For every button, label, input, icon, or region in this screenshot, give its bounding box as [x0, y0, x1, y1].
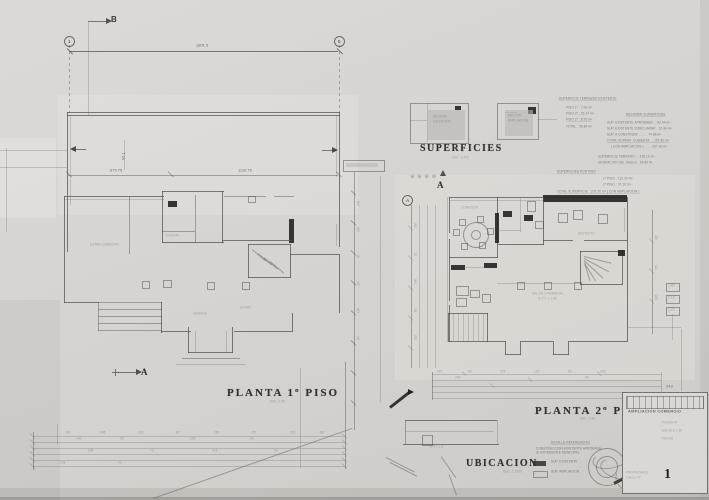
superficies-s1-line: PISO 1º : 7.00 m² — [566, 106, 592, 109]
drawing-line — [98, 309, 162, 310]
arrowhead-icon — [408, 389, 414, 395]
dim-number: 67 — [176, 431, 180, 434]
dim-number: 110 — [290, 431, 295, 434]
drawing-line — [182, 358, 240, 359]
drawing-line — [6, 148, 7, 232]
grid-bubble-5-label: 5 — [338, 39, 341, 45]
drawing-line — [161, 302, 162, 333]
drawing-line — [497, 420, 498, 444]
dim-number: 128 — [60, 461, 66, 464]
drawing-line — [33, 460, 345, 461]
drawing-line — [520, 341, 521, 355]
drawing-line — [67, 115, 340, 116]
drawing-line — [495, 213, 499, 243]
drawing-line — [580, 284, 623, 285]
drawing-line — [390, 462, 417, 477]
plan1-scale: ESC. 1:50 — [270, 400, 285, 403]
plan1-room-label-center: GARAGE — [193, 312, 207, 315]
miniplan1-label-1: SECTOR — [433, 115, 447, 118]
drawing-line — [195, 195, 196, 243]
drawing-line — [580, 251, 623, 252]
plan1-dim-left: 679.75 — [110, 168, 122, 173]
drawing-line — [419, 205, 420, 368]
drawing-line — [624, 208, 625, 232]
titleblock-note: CALLE Nº — [626, 476, 641, 479]
drawing-box — [453, 229, 460, 236]
drawing-line — [57, 424, 58, 444]
drawing-line — [195, 331, 196, 352]
dim-number: 185 — [655, 295, 658, 300]
drawing-line — [449, 257, 498, 258]
drawing-line — [427, 205, 428, 368]
drawing-line — [580, 251, 581, 285]
drawing-line — [290, 254, 340, 255]
plan1-dim-vert: 96.1 — [121, 152, 126, 160]
drawing-line — [115, 369, 116, 376]
titleblock-row: PLANO Nº — [662, 421, 678, 424]
arrowhead-icon — [332, 147, 338, 153]
dim-number: 415 — [655, 235, 658, 240]
drawing-line — [497, 283, 582, 284]
plan2-grid-symbols: ⊕ ⊕ ⊕ ⊗ — [410, 173, 437, 180]
drawing-line — [505, 341, 506, 355]
drawing-line — [618, 250, 625, 256]
dim-number: 120 — [138, 431, 144, 434]
miniplan2-label-1: SECTOR — [508, 114, 522, 117]
plan1-dim-right: 1116.75 — [238, 168, 252, 173]
miniplan1-label-2: EXISTENTE — [433, 120, 451, 123]
drawing-line — [543, 240, 573, 241]
superficies-s1-line: PISO 2º : 15.14 m² — [566, 112, 594, 115]
dim-number: 275 — [500, 370, 506, 373]
drawing-line — [503, 211, 512, 217]
dim-number: 60 — [568, 370, 572, 373]
drawing-line — [70, 51, 338, 52]
superficies-s1-title: SUPERFICIE TERRAZAS EXISTENTE — [559, 97, 617, 101]
dim-number: 140 — [414, 279, 417, 284]
legend-title: DETALLE REFERENCIAS — [551, 441, 590, 445]
ubicacion-scale: ESC. 1:1000 — [503, 470, 522, 473]
drawing-box — [248, 196, 256, 203]
titleblock-sheet-number: 1 — [664, 467, 671, 483]
drawing-line — [98, 316, 162, 317]
dim-number: 245 — [357, 201, 360, 206]
legend-filled-label: SUP. EXISTENTE — [551, 460, 578, 463]
drawing-line — [98, 302, 162, 303]
drawing-box — [574, 282, 582, 290]
plan2-room-label-level: N.P.T. + 2.80 — [538, 297, 557, 300]
scan-dark-left — [0, 300, 60, 500]
drawing-line — [64, 196, 164, 197]
drawing-line — [300, 368, 301, 468]
drawing-line — [68, 175, 338, 176]
drawing-line — [118, 372, 136, 373]
scan-bottom-band — [0, 488, 709, 500]
drawing-line — [478, 313, 479, 342]
dim-number: 55 — [274, 449, 278, 452]
dim-number: 230 — [190, 437, 196, 440]
drawing-line — [162, 231, 195, 232]
superficies-porpiso-line: 2º PISO : 97.10 m² — [603, 183, 631, 186]
drawing-line — [232, 327, 233, 353]
drawing-line — [248, 244, 291, 245]
drawing-line — [162, 242, 224, 243]
plan2-grid-bubble-a-label: A — [406, 198, 409, 204]
drawing-line — [0, 167, 67, 168]
drawing-line — [270, 261, 284, 273]
drawing-box — [544, 282, 552, 290]
dim-number: 345 — [100, 431, 106, 434]
drawing-line — [505, 354, 521, 355]
drawing-line — [483, 313, 484, 342]
drawing-line — [584, 240, 627, 241]
drawing-line — [129, 196, 130, 254]
plan1-room-label-kitchen: COCINA — [166, 234, 179, 237]
drawing-line — [622, 251, 623, 285]
drawing-line — [33, 454, 345, 455]
drawing-line — [176, 364, 246, 365]
drawing-box — [573, 210, 583, 220]
section-b-label: B — [111, 15, 117, 24]
dim-number: 2.80 — [668, 284, 674, 287]
dim-number: 250 — [214, 431, 220, 434]
dim-number: 80 — [468, 370, 472, 373]
drawing-sheet: B 1 5 1801.5 679.75 1116.75 96.1 ESTAR C… — [0, 0, 709, 500]
dim-number: 93 — [118, 461, 122, 464]
drawing-line — [672, 314, 673, 340]
superficies-resumen-title: RESUMEN SUPERFICIES — [626, 113, 665, 117]
legend-open-label: SUP. AMPLIACION — [551, 470, 579, 473]
dim-number: 72 — [150, 449, 154, 452]
drawing-line — [336, 224, 337, 246]
dim-number: 407 — [437, 370, 443, 373]
drawing-line — [64, 196, 65, 303]
drawing-line — [33, 466, 345, 467]
drawing-line — [226, 331, 227, 352]
plan1-room-label-left: ESTAR COMEDOR — [90, 243, 119, 246]
dim-number: 95 — [414, 252, 417, 256]
dim-number: 315 — [212, 449, 218, 452]
miniplan2-label-2: AMPLIACION — [508, 119, 528, 122]
drawing-line — [498, 244, 544, 245]
drawing-line — [487, 313, 488, 342]
drawing-box — [482, 294, 491, 303]
drawing-line — [274, 196, 294, 197]
grid-bubble-5: 5 — [334, 36, 345, 47]
drawing-line — [681, 329, 682, 391]
drawing-line — [64, 302, 99, 303]
drawing-line — [451, 265, 465, 270]
drawing-line — [498, 230, 521, 231]
dim-number: 75 — [252, 431, 256, 434]
drawing-line — [98, 323, 162, 324]
plan1-section-a-label: A — [141, 367, 148, 377]
drawing-line — [449, 239, 450, 301]
drawing-line — [432, 372, 433, 400]
drawing-line — [448, 313, 449, 342]
drawing-line — [524, 215, 533, 221]
drawing-line — [339, 112, 340, 205]
drawing-box — [142, 281, 150, 289]
dim-number: 95 — [357, 336, 360, 340]
drawing-line — [435, 205, 436, 368]
drawing-line — [33, 442, 345, 443]
dim-number: 95 — [585, 376, 589, 379]
drawing-box — [456, 286, 469, 296]
dim-number: 150 — [357, 308, 360, 313]
superficies-resumen-line: SUP. EXISTENTE APROBADA . . 82.44 m² — [607, 121, 670, 124]
drawing-line — [248, 277, 291, 278]
drawing-line — [473, 313, 474, 342]
dim-number: 185 — [88, 449, 94, 452]
titleblock-project: AMPLIACION COMERCIO — [628, 409, 681, 414]
titleblock-letter-cells — [626, 396, 704, 409]
drawing-line — [627, 197, 628, 342]
drawing-line — [463, 313, 464, 342]
plan2-grid-bubble-a: A — [402, 195, 413, 206]
drawing-line — [70, 115, 71, 205]
drawing-line — [88, 21, 106, 22]
drawing-line — [64, 199, 164, 200]
dim-number: 310 — [357, 281, 360, 286]
titleblock-row: FECHA — [662, 437, 673, 440]
dim-number: 1.20 — [668, 308, 674, 311]
titleblock-ref-no: 243 — [666, 384, 673, 389]
drawing-box — [242, 282, 250, 290]
dim-number: 260 — [414, 223, 417, 228]
superficies-resumen-line: ( CON AMPLIACION ) . . . . 207.30 m² — [611, 145, 667, 148]
drawing-line — [162, 191, 224, 192]
drawing-box — [535, 221, 544, 229]
drawing-line — [405, 420, 497, 421]
superficies-resumen-line: TOTAL SUPERF. CUBIERTA . . 157.30 m² — [607, 139, 669, 143]
grid-bubble-1-label: 1 — [68, 39, 71, 45]
plan2-room-label-comedor: COMEDOR — [461, 206, 478, 209]
arrowhead-icon — [70, 146, 76, 152]
drawing-box — [343, 160, 385, 172]
titleblock-row: ESCALA 1:50 — [662, 429, 682, 432]
plan2-room-label-main: SALON COMERCIAL — [532, 292, 564, 295]
drawing-line — [380, 176, 381, 402]
superficies-title: SUPERFICIES — [420, 143, 503, 154]
drawing-circle — [471, 230, 481, 240]
drawing-line — [290, 244, 291, 278]
drawing-line — [168, 201, 177, 207]
superficies-porpiso-title: SUPERFICIES POR PISO — [557, 170, 596, 174]
drawing-line — [67, 112, 68, 252]
drawing-line — [520, 197, 521, 232]
dim-number: 125 — [534, 370, 540, 373]
drawing-box — [410, 103, 469, 144]
superficies-resumen-line: SUP. A CONSTRUIR . . . . . 74.86 m² — [607, 133, 661, 136]
drawing-line — [354, 172, 355, 430]
plan2-room-label-deposito: DEPOSITO — [578, 232, 595, 235]
drawing-line — [336, 115, 337, 177]
drawing-line — [458, 313, 459, 342]
drawing-line — [222, 191, 223, 243]
dim-number: 88 — [320, 431, 324, 434]
drawing-line — [98, 302, 99, 331]
plan1-title: PLANTA 1º PISO — [227, 387, 339, 399]
dim-number: 98 — [66, 431, 70, 434]
grid-bubble-1: 1 — [64, 36, 75, 47]
superficies-total-line: TOTAL SUPERFICIE : 207.30 m² ( CON AMPLI… — [557, 190, 639, 194]
drawing-box — [533, 471, 548, 478]
scan-light-area-2 — [395, 175, 695, 380]
drawing-line — [386, 457, 415, 472]
superficies-scale: ESC. 1:200 — [452, 156, 469, 159]
drawing-line — [292, 313, 293, 332]
plan2-section-a-label: A — [437, 180, 444, 190]
drawing-line — [484, 263, 497, 268]
drawing-line — [188, 327, 189, 353]
dim-number: 270 — [655, 265, 658, 270]
drawing-box — [470, 290, 480, 298]
drawing-line — [33, 448, 345, 449]
drawing-box — [527, 201, 536, 212]
drawing-line — [248, 244, 249, 278]
drawing-line — [339, 255, 340, 313]
drawing-line — [521, 341, 553, 342]
drawing-line — [188, 352, 233, 353]
drawing-line — [161, 331, 191, 332]
drawing-box — [207, 282, 215, 290]
drawing-line — [0, 150, 67, 151]
drawing-line — [432, 380, 662, 381]
plan1-room-label-right: ESTAR — [240, 306, 251, 309]
drawing-line — [69, 45, 70, 113]
dim-number: 80 — [414, 308, 417, 312]
dim-number: 240 — [455, 376, 461, 379]
drawing-line — [449, 197, 450, 233]
dim-number: 85 — [357, 254, 360, 258]
superficies-porpiso-line: 1º PISO : 110.20 m² — [603, 177, 633, 180]
dim-number: 315 — [600, 370, 606, 373]
drawing-line — [449, 305, 450, 342]
legend-note: S/ EXPEDIENTE MUNICIPAL — [536, 451, 580, 454]
ubicacion-street-label: C A L L E — [430, 445, 444, 448]
drawing-line — [406, 431, 494, 432]
drawing-line — [537, 119, 557, 120]
drawing-line — [162, 191, 163, 243]
superficies-terreno-line: SUPERFICIE TERRENO . . 278.10 m² — [598, 155, 655, 158]
drawing-line — [88, 21, 89, 115]
titleblock-note: PROPIETARIO — [626, 471, 648, 474]
drawing-box — [456, 298, 467, 307]
drawing-line — [468, 313, 469, 342]
dim-number: 95 — [120, 437, 124, 440]
drawing-line — [432, 386, 662, 387]
plan2-scale: ESC. 1:50 — [580, 417, 595, 420]
drawing-line — [553, 354, 569, 355]
drawing-line — [453, 313, 454, 342]
drawing-line — [222, 240, 292, 241]
drawing-box — [558, 213, 568, 223]
ubicacion-title: UBICACION — [466, 458, 538, 469]
drawing-line — [98, 330, 162, 331]
dim-number: 120 — [357, 227, 360, 232]
superficies-s1-line: TOTAL : 30.84 m² — [566, 125, 592, 128]
superficies-terreno-line: OCUPACION DEL SUELO . 54.80 % — [598, 161, 652, 164]
drawing-line — [466, 267, 484, 268]
drawing-line — [403, 444, 499, 445]
dim-number: 140 — [76, 437, 82, 440]
drawing-line — [224, 196, 266, 197]
superficies-s1-line: PISO 2º : 8.70 m² — [566, 118, 592, 122]
drawing-line — [67, 112, 340, 113]
drawing-line — [339, 45, 340, 113]
drawing-box — [517, 282, 525, 290]
drawing-line — [234, 331, 292, 332]
drawing-box — [459, 219, 466, 226]
legend-note: CONSTRUCCION EXISTENTE APROBADA — [536, 447, 601, 450]
dim-number: 210 — [414, 335, 417, 340]
overall-dimension: 1801.5 — [196, 43, 208, 48]
drawing-line — [339, 205, 340, 247]
dim-number: 0.15 — [668, 296, 674, 299]
drawing-line — [569, 341, 627, 342]
drawing-line — [553, 341, 554, 355]
scan-light-area-1 — [58, 95, 358, 215]
drawing-line — [405, 420, 406, 444]
drawing-line — [568, 341, 569, 355]
dim-number: 60 — [250, 437, 254, 440]
drawing-box — [598, 214, 608, 224]
drawing-line — [543, 195, 627, 202]
drawing-box — [163, 280, 172, 288]
superficies-resumen-line: SUP. EXISTENTE S/DECLARAR . 12.40 m² — [607, 127, 672, 130]
arrowhead-icon — [440, 169, 446, 176]
